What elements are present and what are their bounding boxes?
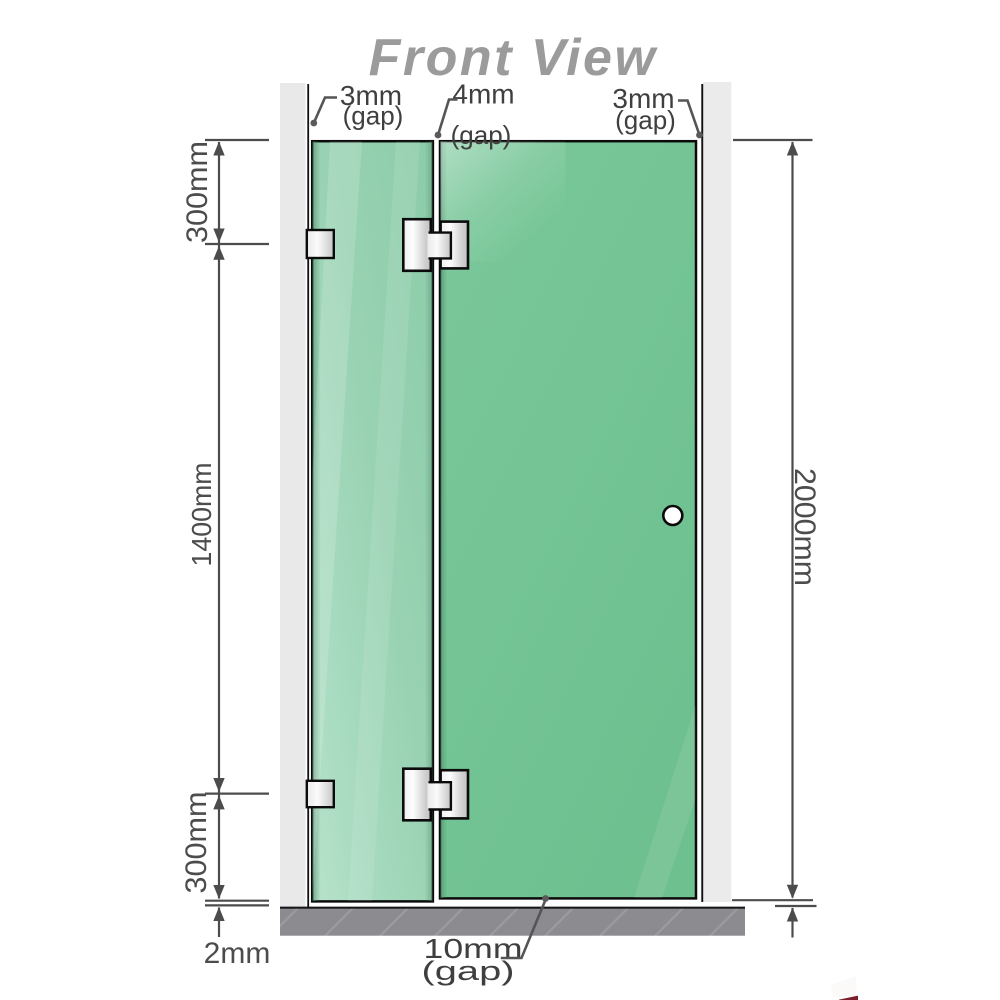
svg-text:(gap): (gap) (451, 120, 512, 150)
svg-text:300mm: 300mm (181, 141, 214, 243)
svg-text:(gap): (gap) (422, 956, 515, 986)
svg-text:4mm: 4mm (452, 79, 514, 110)
svg-text:(gap): (gap) (343, 101, 404, 131)
svg-text:2000mm: 2000mm (788, 468, 821, 586)
svg-text:2mm: 2mm (204, 937, 271, 970)
svg-text:(gap): (gap) (615, 105, 676, 135)
svg-text:1400mm: 1400mm (186, 463, 217, 567)
svg-text:300mm: 300mm (180, 792, 213, 894)
